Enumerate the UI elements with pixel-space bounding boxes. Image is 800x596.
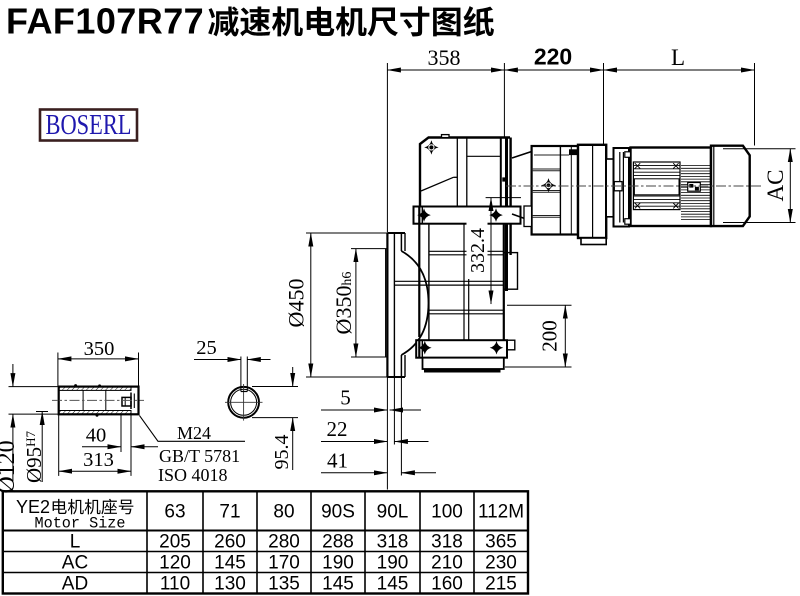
svg-text:5: 5 [340, 386, 351, 410]
svg-text:200: 200 [538, 320, 562, 352]
svg-text:332.4: 332.4 [467, 228, 489, 273]
svg-text:110: 110 [160, 574, 190, 595]
svg-text:L: L [70, 532, 81, 553]
svg-text:190: 190 [377, 553, 409, 574]
svg-text:220: 220 [534, 44, 572, 70]
svg-text:40: 40 [86, 424, 107, 446]
svg-text:BOSERL: BOSERL [46, 109, 132, 141]
svg-text:AC: AC [763, 170, 788, 202]
svg-text:365: 365 [485, 532, 517, 553]
svg-text:M24: M24 [177, 423, 211, 443]
svg-text:288: 288 [322, 532, 354, 553]
svg-text:260: 260 [214, 532, 246, 553]
svg-text:318: 318 [431, 532, 463, 553]
svg-text:190: 190 [322, 553, 354, 574]
svg-text:63: 63 [164, 502, 185, 523]
svg-text:210: 210 [431, 553, 463, 574]
svg-text:145: 145 [377, 574, 409, 595]
svg-text:318: 318 [377, 532, 409, 553]
svg-text:Motor Size: Motor Size [35, 515, 126, 533]
svg-text:ISO 4018: ISO 4018 [158, 465, 228, 485]
svg-text:100: 100 [431, 502, 463, 523]
svg-text:22: 22 [327, 417, 348, 441]
svg-text:L: L [671, 45, 685, 70]
svg-text:280: 280 [268, 532, 300, 553]
svg-text:313: 313 [83, 449, 114, 471]
svg-text:145: 145 [322, 574, 354, 595]
svg-text:145: 145 [214, 553, 246, 574]
svg-text:350: 350 [84, 338, 115, 360]
svg-text:GB/T 5781: GB/T 5781 [159, 446, 240, 466]
svg-text:120: 120 [159, 553, 191, 574]
svg-text:AD: AD [62, 574, 88, 595]
svg-text:160: 160 [431, 574, 463, 595]
svg-text:215: 215 [485, 574, 517, 595]
svg-text:90S: 90S [321, 502, 355, 523]
svg-text:112M: 112M [478, 502, 524, 523]
svg-text:230: 230 [485, 553, 517, 574]
svg-text:358: 358 [428, 45, 461, 70]
svg-text:71: 71 [219, 502, 240, 523]
svg-text:205: 205 [159, 532, 191, 553]
svg-text:135: 135 [268, 574, 300, 595]
svg-text:95.4: 95.4 [271, 435, 293, 470]
svg-text:AC: AC [62, 553, 88, 574]
svg-text:Ø120: Ø120 [0, 440, 20, 493]
svg-text:41: 41 [327, 448, 348, 472]
svg-text:Ø450: Ø450 [284, 279, 309, 328]
svg-text:25: 25 [196, 337, 217, 359]
svg-text:130: 130 [214, 574, 246, 595]
svg-text:90L: 90L [377, 502, 409, 523]
svg-text:80: 80 [273, 502, 294, 523]
svg-text:170: 170 [268, 553, 300, 574]
svg-text:FAF107R77: FAF107R77 [6, 1, 204, 42]
